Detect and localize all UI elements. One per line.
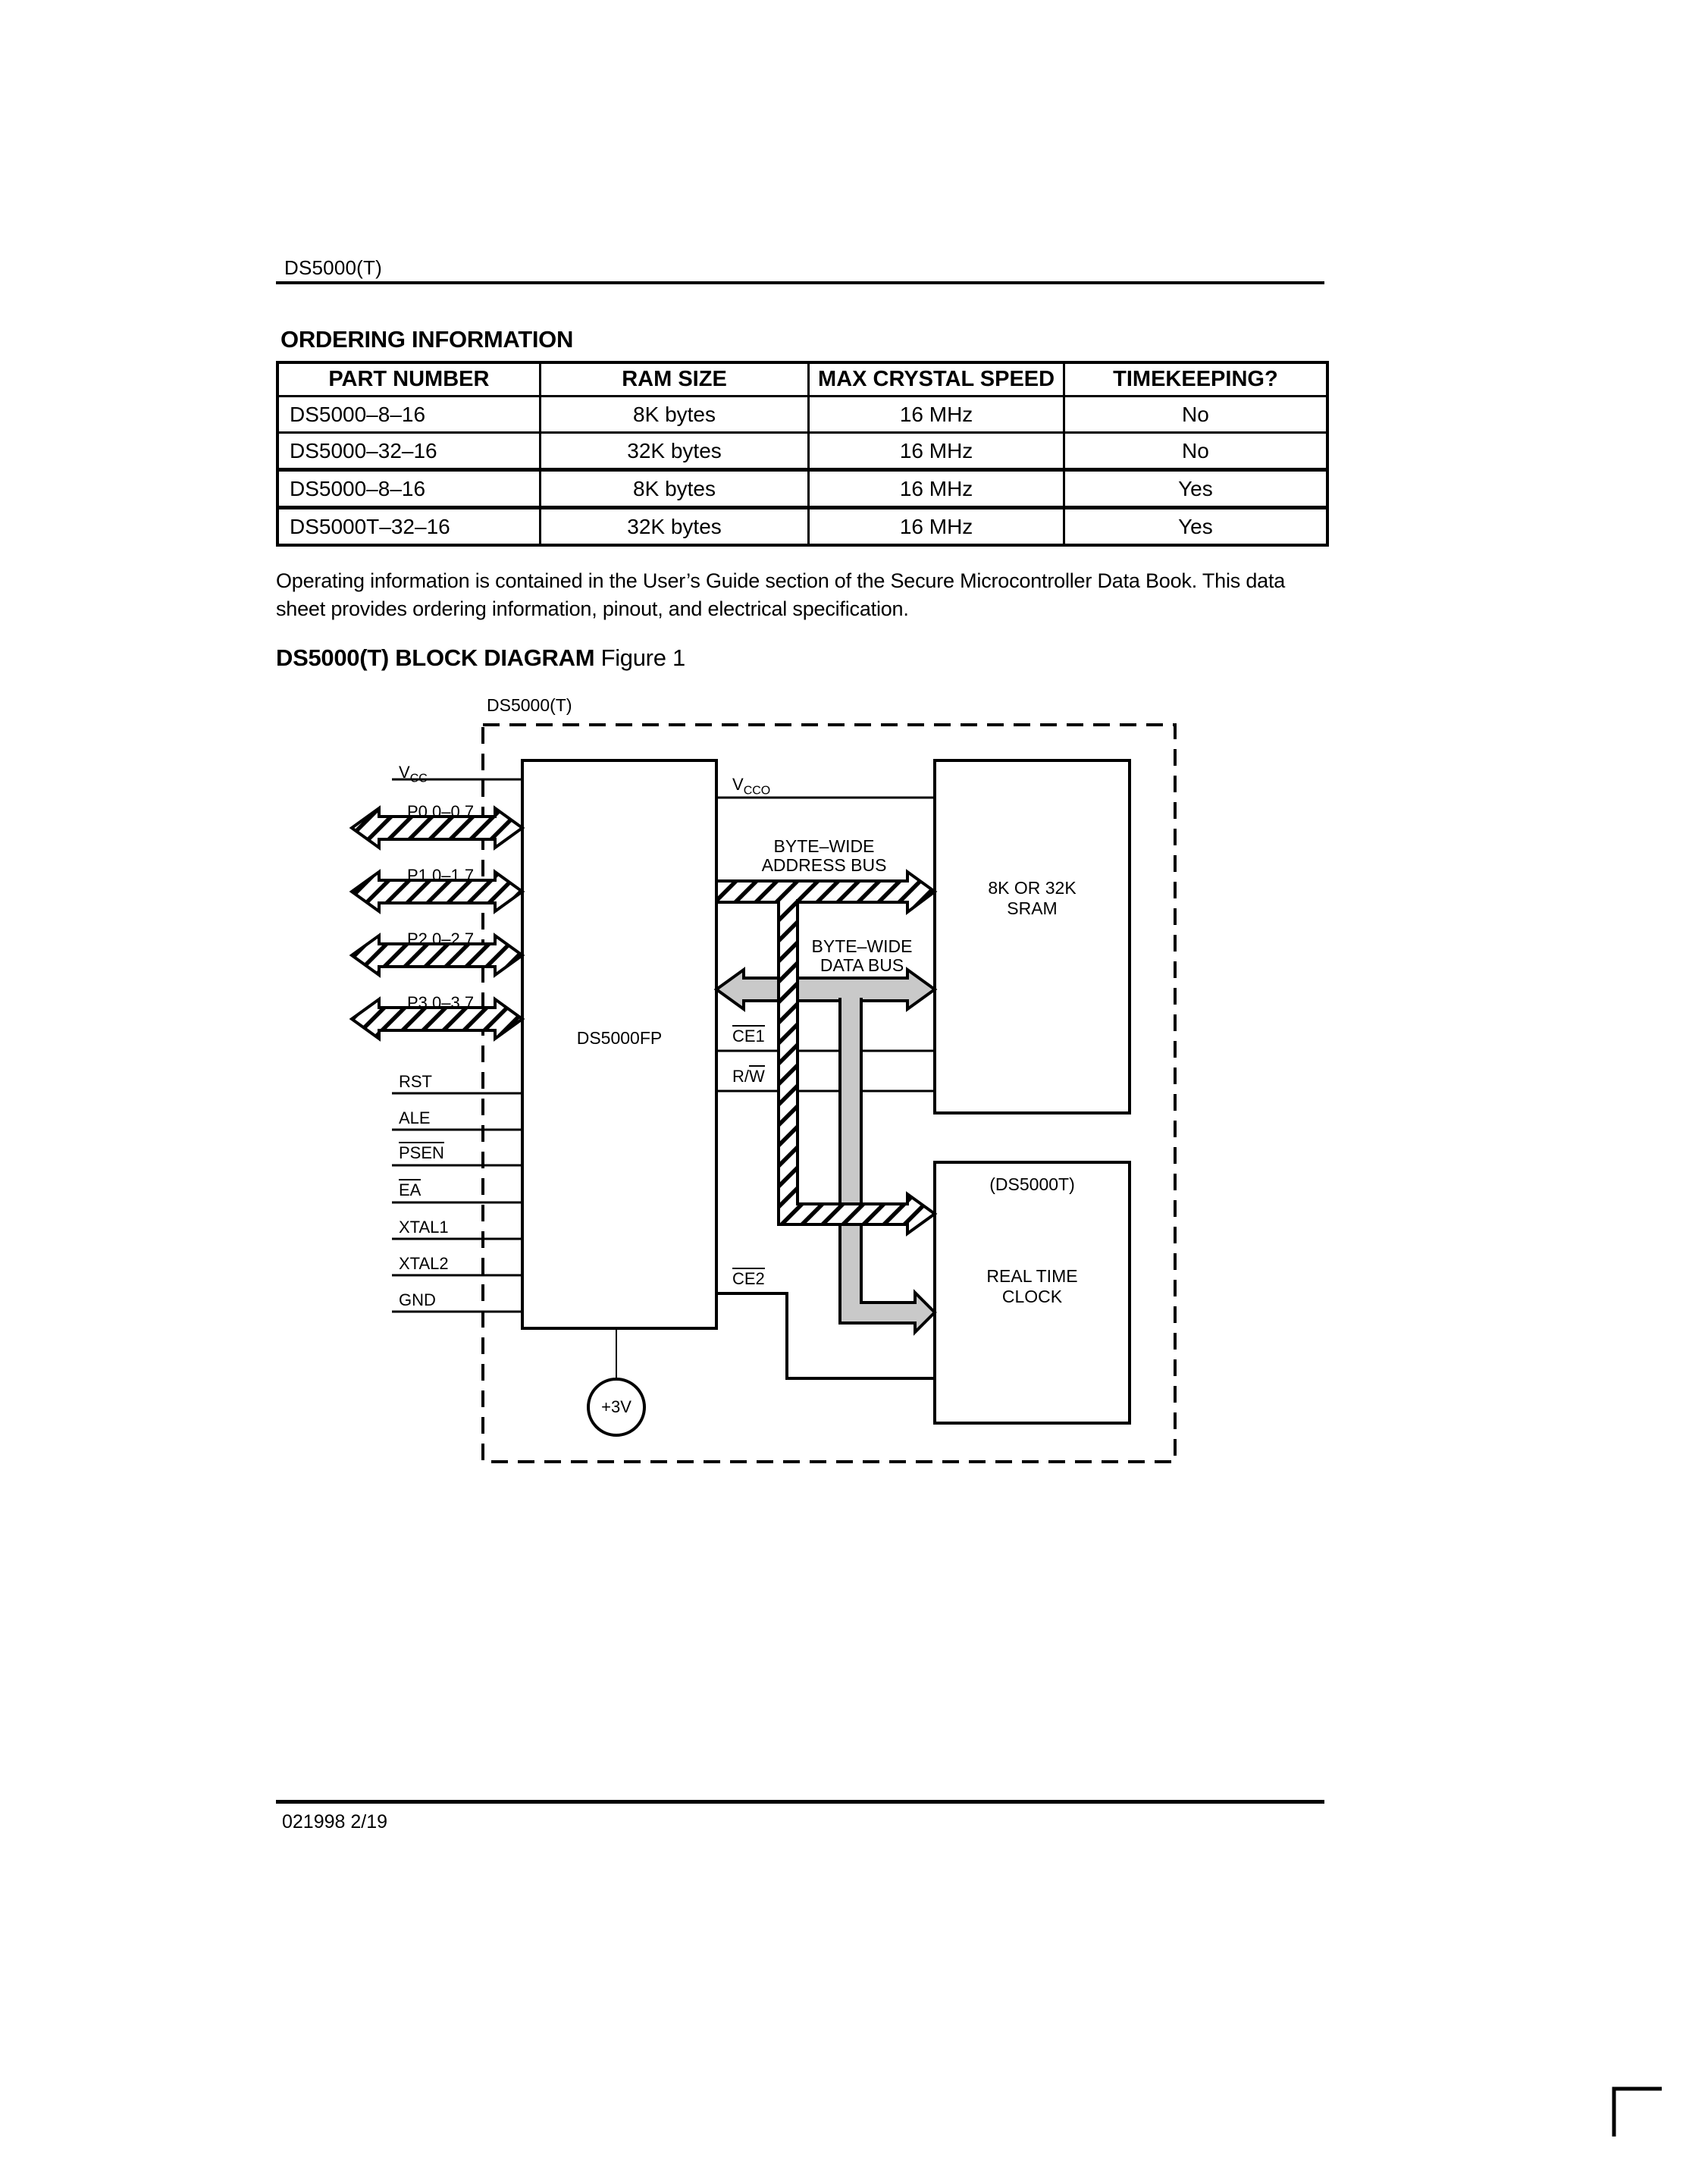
pin-label-p0-0-0-7: P0.0–0.7 bbox=[407, 802, 474, 822]
cpu-block-label: DS5000FP bbox=[522, 1028, 716, 1049]
address-bus-arrow bbox=[716, 872, 935, 912]
pin-label-p1-0-1-7: P1.0–1.7 bbox=[407, 866, 474, 886]
data-bus-rtc-branch-fill bbox=[840, 998, 935, 1332]
battery-label: +3V bbox=[588, 1397, 644, 1417]
pin-label-psen: PSEN bbox=[399, 1142, 444, 1163]
data-bus-label: BYTE–WIDEDATA BUS bbox=[786, 937, 938, 975]
pin-label-p3-0-3-7: P3.0–3.7 bbox=[407, 993, 474, 1013]
pin-label-ale: ALE bbox=[399, 1108, 431, 1128]
data-bus-arrow bbox=[716, 970, 935, 1009]
pin-label-rw: R/W bbox=[732, 1065, 765, 1086]
pin-label-p2-0-2-7: P2.0–2.7 bbox=[407, 930, 474, 949]
pin-label-ce2: CE2 bbox=[732, 1268, 765, 1289]
address-bus-label: BYTE–WIDEADDRESS BUS bbox=[748, 837, 900, 875]
pin-label-gnd: GND bbox=[399, 1290, 436, 1310]
sram-block-label: 8K OR 32KSRAM bbox=[935, 878, 1130, 919]
pin-label-vcc: VCC bbox=[399, 763, 428, 785]
sram-block bbox=[935, 760, 1130, 1113]
pin-label-xtal2: XTAL2 bbox=[399, 1254, 449, 1274]
rtc-block-label: REAL TIMECLOCK bbox=[935, 1266, 1130, 1307]
pin-label-ce1: CE1 bbox=[732, 1025, 765, 1046]
pin-label-vcco: VCCO bbox=[732, 775, 770, 798]
rtc-block-tag: (DS5000T) bbox=[935, 1174, 1130, 1195]
datasheet-page: { "header": { "doc_id": "DS5000(T)" }, "… bbox=[0, 0, 1708, 2182]
page-corner-mark bbox=[1614, 2089, 1662, 2137]
block-diagram-canvas bbox=[0, 0, 1708, 2182]
footer-rule bbox=[276, 1800, 1324, 1804]
pin-label-rst: RST bbox=[399, 1072, 432, 1092]
footer-code: 021998 2/19 bbox=[282, 1811, 387, 1833]
envelope-label: DS5000(T) bbox=[487, 695, 572, 716]
pin-label-xtal1: XTAL1 bbox=[399, 1218, 449, 1237]
pin-label-ea: EA bbox=[399, 1179, 421, 1200]
